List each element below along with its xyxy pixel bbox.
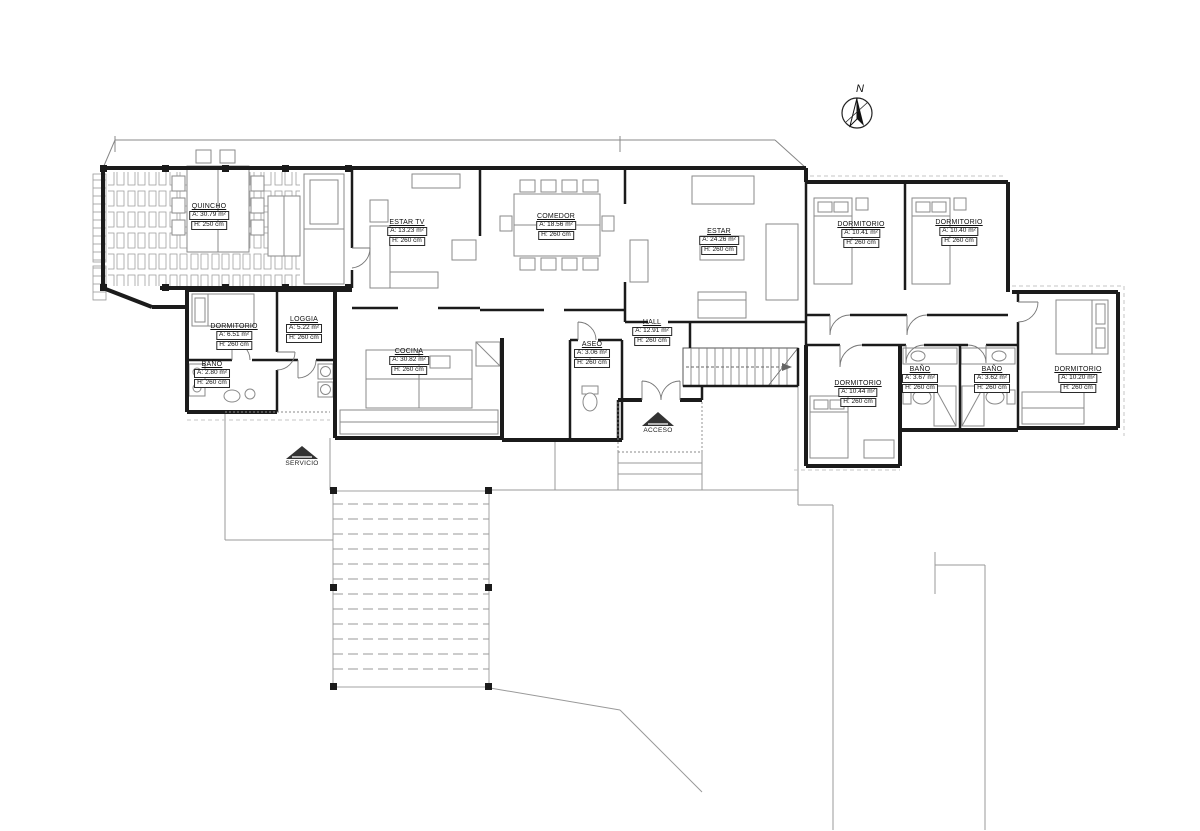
room-height: H: 260 cm: [840, 398, 876, 407]
room-name: BAÑO: [194, 361, 230, 368]
room-label-bano-2: BAÑO A: 3.67 m² H: 260 cm: [902, 366, 938, 393]
room-label-dormitorio-2: DORMITORIO A: 10.40 m² H: 260 cm: [935, 219, 982, 246]
room-area: A: 3.06 m²: [574, 349, 610, 358]
room-height: H: 260 cm: [1060, 384, 1096, 393]
room-label-estar: ESTAR A: 24.26 m² H: 260 cm: [699, 228, 739, 255]
room-label-dormitorio-5: DORMITORIO A: 10.20 m² H: 260 cm: [1054, 366, 1101, 393]
room-name: HALL: [632, 319, 672, 326]
furniture: [172, 150, 1108, 458]
room-height: H: 260 cm: [286, 334, 322, 343]
deck: [333, 491, 489, 687]
room-height: H: 260 cm: [843, 239, 879, 248]
room-height: H: 260 cm: [941, 237, 977, 246]
room-label-dormitorio-1: DORMITORIO A: 10.41 m² H: 260 cm: [837, 221, 884, 248]
compass-icon: [842, 98, 872, 128]
room-area: A: 24.26 m²: [699, 236, 739, 245]
room-height: H: 260 cm: [391, 366, 427, 375]
room-name: ESTAR: [699, 228, 739, 235]
room-name: ESTAR TV: [387, 219, 427, 226]
servicio-arrow-icon: [286, 446, 318, 459]
room-label-loggia: LOGGIA A: 5.22 m² H: 260 cm: [286, 316, 322, 343]
room-label-cocina: COCINA A: 30.82 m² H: 260 cm: [389, 348, 429, 375]
room-name: DORMITORIO: [1054, 366, 1101, 373]
acceso-label: ACCESO: [643, 427, 672, 434]
room-height: H: 260 cm: [389, 237, 425, 246]
room-label-quincho: QUINCHO A: 30.79 m² H: 250 cm: [189, 203, 229, 230]
servicio-label: SERVICIO: [285, 460, 318, 467]
room-label-estar-tv: ESTAR TV A: 13.23 m² H: 260 cm: [387, 219, 427, 246]
room-name: BAÑO: [902, 366, 938, 373]
room-area: A: 10.20 m²: [1058, 374, 1098, 383]
room-area: A: 3.67 m²: [902, 374, 938, 383]
room-area: A: 18.56 m²: [536, 221, 576, 230]
room-name: COCINA: [389, 348, 429, 355]
room-area: A: 5.22 m²: [286, 324, 322, 333]
room-name: DORMITORIO: [834, 380, 881, 387]
room-height: H: 260 cm: [974, 384, 1010, 393]
room-area: A: 3.62 m²: [974, 374, 1010, 383]
room-area: A: 13.23 m²: [387, 227, 427, 236]
room-area: A: 10.40 m²: [939, 227, 979, 236]
floor-plan: QUINCHO A: 30.79 m² H: 250 cm ESTAR TV A…: [0, 0, 1200, 831]
room-area: A: 10.44 m²: [838, 388, 878, 397]
room-height: H: 260 cm: [574, 359, 610, 368]
room-height: H: 260 cm: [538, 231, 574, 240]
room-height: H: 260 cm: [194, 379, 230, 388]
room-height: H: 260 cm: [634, 337, 670, 346]
room-name: BAÑO: [974, 366, 1010, 373]
compass-north-label: N: [856, 83, 864, 95]
room-height: H: 260 cm: [902, 384, 938, 393]
room-height: H: 260 cm: [216, 341, 252, 350]
room-area: A: 6.51 m²: [216, 331, 252, 340]
room-label-comedor: COMEDOR A: 18.56 m² H: 260 cm: [536, 213, 576, 240]
room-height: H: 260 cm: [701, 246, 737, 255]
room-label-dormitorio-4: DORMITORIO A: 10.44 m² H: 260 cm: [834, 380, 881, 407]
room-height: H: 250 cm: [191, 221, 227, 230]
acceso-arrow-icon: [642, 412, 674, 426]
room-label-bano-1: BAÑO A: 2.80 m² H: 260 cm: [194, 361, 230, 388]
room-label-hall: HALL A: 12.91 m² H: 260 cm: [632, 319, 672, 346]
room-area: A: 12.91 m²: [632, 327, 672, 336]
room-label-dormitorio-3: DORMITORIO A: 6.51 m² H: 260 cm: [210, 323, 257, 350]
room-name: DORMITORIO: [935, 219, 982, 226]
room-name: DORMITORIO: [210, 323, 257, 330]
room-name: COMEDOR: [536, 213, 576, 220]
room-area: A: 10.41 m²: [841, 229, 881, 238]
room-label-bano-3: BAÑO A: 3.62 m² H: 260 cm: [974, 366, 1010, 393]
room-label-aseo: ASEO A: 3.06 m² H: 260 cm: [574, 341, 610, 368]
room-area: A: 30.79 m²: [189, 211, 229, 220]
room-area: A: 2.80 m²: [194, 369, 230, 378]
room-name: ASEO: [574, 341, 610, 348]
stairs: [683, 348, 798, 386]
room-name: DORMITORIO: [837, 221, 884, 228]
room-area: A: 30.82 m²: [389, 356, 429, 365]
room-name: QUINCHO: [189, 203, 229, 210]
room-name: LOGGIA: [286, 316, 322, 323]
plan-linework: [0, 0, 1200, 831]
